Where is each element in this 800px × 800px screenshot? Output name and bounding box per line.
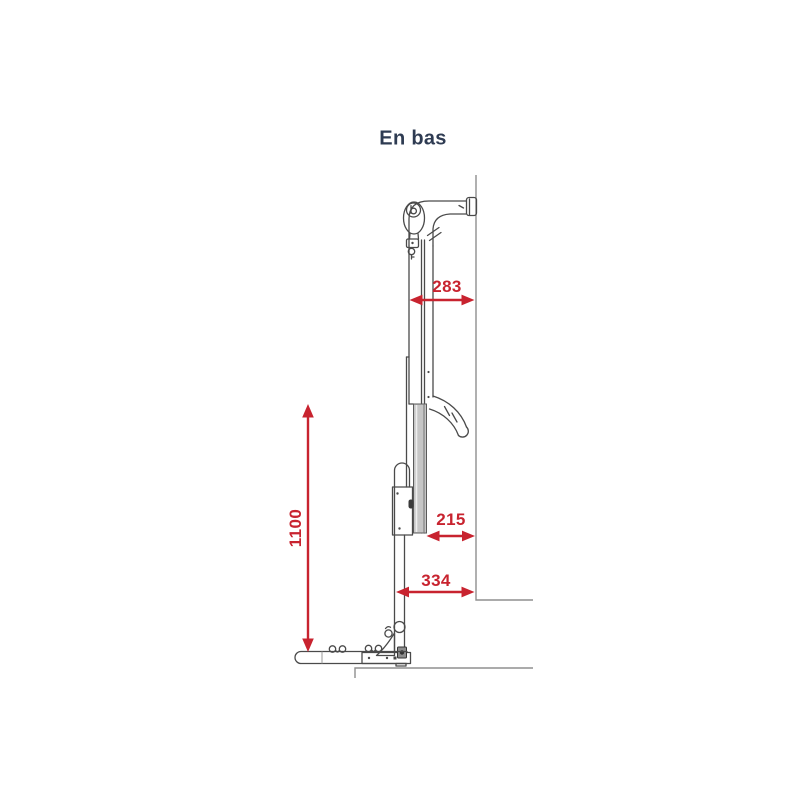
platform-tube (295, 652, 407, 664)
support-arm (430, 396, 469, 437)
diagram-page: En bas 283 215 334 1100 (0, 0, 800, 800)
rack-drawing (295, 198, 477, 667)
inner-rail (414, 404, 427, 533)
mounting-plate (393, 487, 414, 535)
plate-handle (409, 500, 414, 509)
wall-line (476, 175, 533, 600)
line-drawing (0, 0, 800, 800)
ground-line (355, 668, 533, 678)
dimension-label-bottom-width: 334 (421, 571, 451, 591)
dimension-label-mid-width: 215 (436, 510, 466, 530)
dimension-arrow-215 (427, 531, 476, 542)
wall-mount-cap (467, 198, 477, 216)
bottom-bracket (362, 622, 411, 667)
dimension-label-height: 1100 (286, 509, 306, 547)
diagram-title: En bas (379, 128, 446, 151)
dimension-label-top-width: 283 (432, 277, 462, 297)
brand-logo-icon (411, 206, 417, 214)
